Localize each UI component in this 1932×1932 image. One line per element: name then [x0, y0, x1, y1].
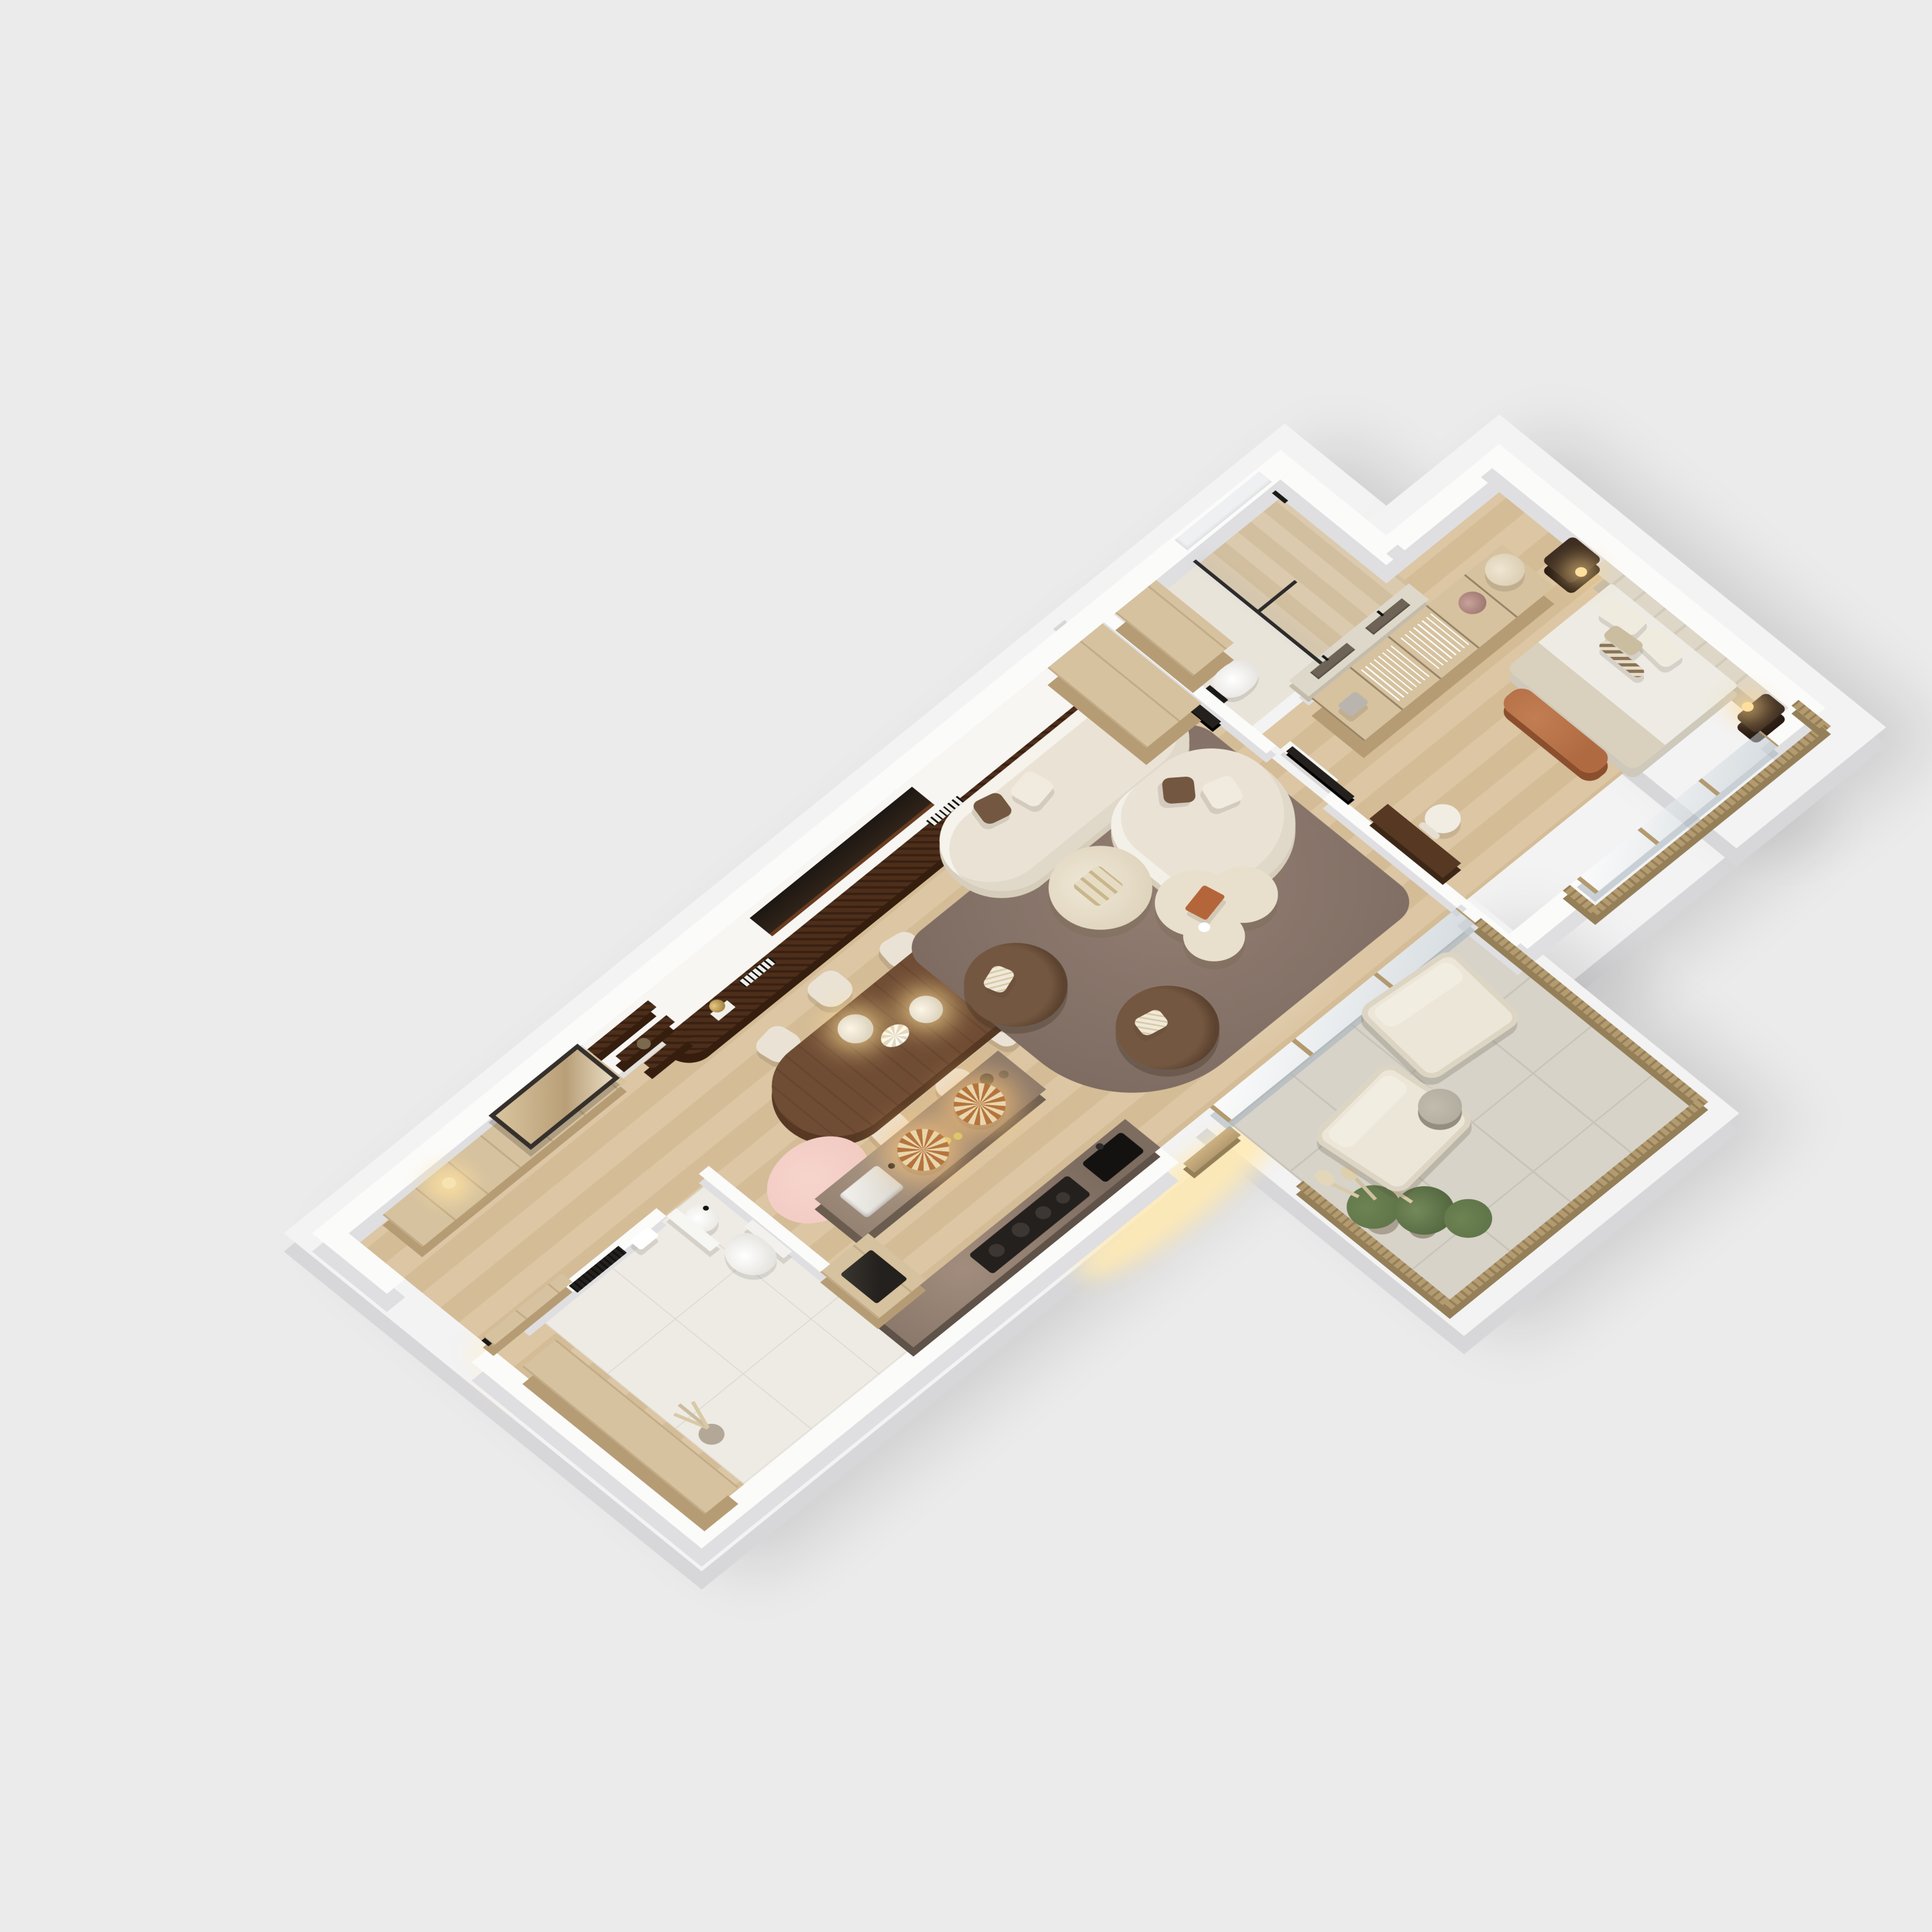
- sofa-pillow-brown: [1162, 776, 1197, 804]
- isometric-scene: [264, 365, 1932, 1793]
- floor-plan-canvas: [0, 0, 1932, 1932]
